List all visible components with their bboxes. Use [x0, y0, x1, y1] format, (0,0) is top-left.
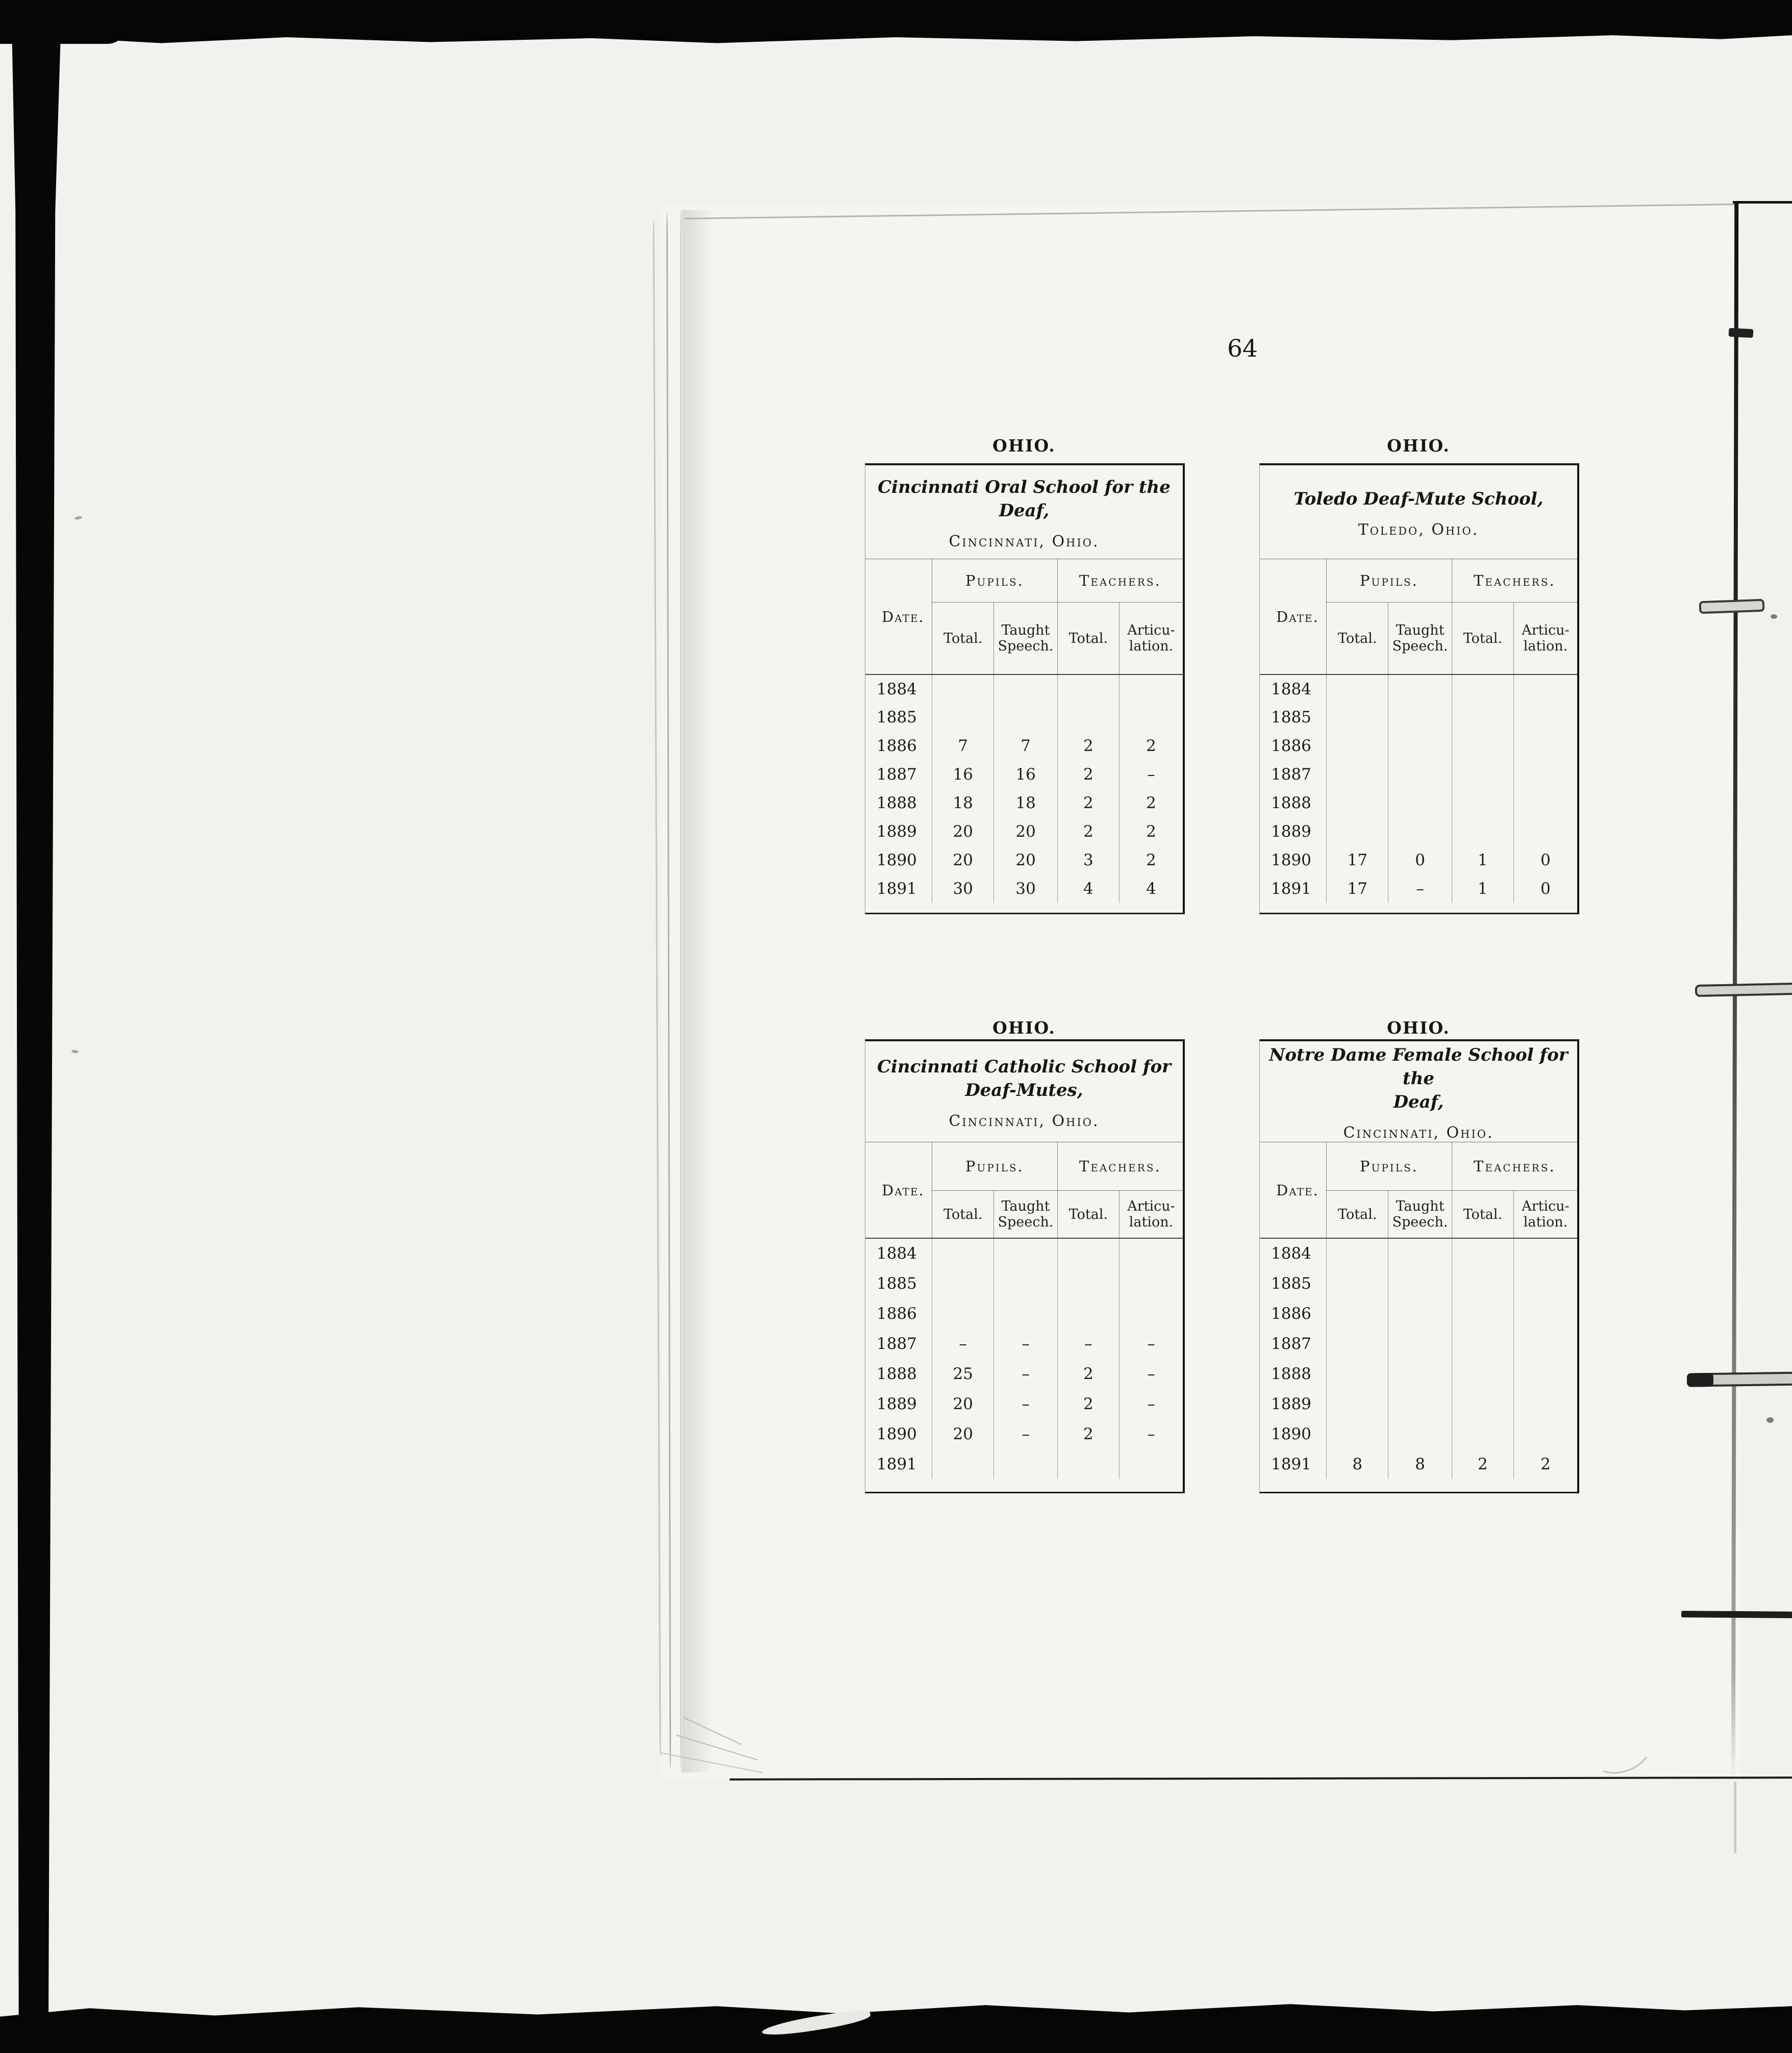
- binding-clip: [1695, 983, 1792, 997]
- value-cell: [994, 1268, 1057, 1298]
- col-header-sub: Articu- lation.: [1514, 1191, 1577, 1239]
- col-header-sub: Total.: [932, 603, 994, 675]
- col-header-date: Date.: [865, 559, 932, 674]
- page-curl-edge: [680, 209, 681, 1769]
- year-cell: 1885: [1260, 1268, 1327, 1298]
- value-cell: [994, 703, 1057, 732]
- value-cell: [1057, 1238, 1119, 1268]
- value-cell: 2: [1057, 789, 1119, 817]
- region-label: OHIO.: [1260, 1018, 1577, 1038]
- school-location: Toledo, Ohio.: [1358, 521, 1479, 539]
- value-cell: [1452, 1298, 1513, 1329]
- value-cell: 30: [994, 874, 1057, 903]
- table-row: 1886: [1260, 1298, 1577, 1329]
- value-cell: [1452, 1238, 1513, 1268]
- table-row: 1891303044: [865, 874, 1183, 903]
- value-cell: [1514, 1298, 1577, 1329]
- binding-clip: [1699, 599, 1765, 614]
- table-row: 1884: [865, 674, 1183, 703]
- value-cell: 8: [1388, 1449, 1452, 1479]
- value-cell: –: [994, 1359, 1057, 1389]
- value-cell: [994, 1238, 1057, 1268]
- table-row: 18867722: [865, 732, 1183, 760]
- scan-black-strip-left: [6, 30, 62, 2053]
- value-cell: 7: [932, 732, 994, 760]
- value-cell: 8: [1327, 1449, 1388, 1479]
- col-header-date: Date.: [1260, 559, 1327, 674]
- value-cell: 0: [1388, 846, 1452, 874]
- value-cell: –: [994, 1389, 1057, 1419]
- statistics-table: Date.Pupils.Teachers.Total.Taught Speech…: [1260, 1142, 1577, 1479]
- table-row: 1885: [1260, 703, 1577, 732]
- value-cell: [1119, 1238, 1183, 1268]
- col-header-sub: Total.: [1452, 603, 1513, 675]
- table-row: 18918822: [1260, 1449, 1577, 1479]
- year-cell: 1891: [865, 1449, 932, 1479]
- binding-clip: [1729, 328, 1754, 338]
- binding-top-edge: [1733, 201, 1792, 204]
- value-cell: 16: [994, 760, 1057, 789]
- year-cell: 1886: [1260, 1298, 1327, 1329]
- value-cell: 17: [1327, 846, 1388, 874]
- value-cell: 20: [932, 846, 994, 874]
- year-cell: 1887: [865, 760, 932, 789]
- value-cell: [1327, 760, 1388, 789]
- value-cell: [932, 1238, 994, 1268]
- value-cell: [1388, 1359, 1452, 1389]
- paper-page: [661, 205, 1741, 1780]
- col-header-sub: Articu- lation.: [1119, 1191, 1183, 1239]
- col-header-sub: Taught Speech.: [994, 1191, 1057, 1239]
- value-cell: [1388, 1298, 1452, 1329]
- value-cell: 18: [994, 789, 1057, 817]
- value-cell: –: [1119, 1359, 1183, 1389]
- value-cell: [1327, 732, 1388, 760]
- scanned-document-page: 64 OHIO. Cincinnati Oral School for the …: [0, 0, 1792, 2053]
- table-row: 1888: [1260, 1359, 1577, 1389]
- value-cell: –: [1388, 874, 1452, 903]
- value-cell: 2: [1057, 1359, 1119, 1389]
- col-header-sub: Total.: [1452, 1191, 1513, 1239]
- value-cell: [1452, 817, 1513, 846]
- table-row: 1885: [865, 1268, 1183, 1298]
- year-cell: 1888: [1260, 1359, 1327, 1389]
- value-cell: [1388, 703, 1452, 732]
- value-cell: [1514, 674, 1577, 703]
- value-cell: 4: [1119, 874, 1183, 903]
- table-row: 1884: [865, 1238, 1183, 1268]
- value-cell: 2: [1057, 760, 1119, 789]
- table-row: 1886: [865, 1298, 1183, 1329]
- value-cell: [1327, 1419, 1388, 1449]
- region-label: OHIO.: [865, 436, 1183, 456]
- table-row: 1888181822: [865, 789, 1183, 817]
- value-cell: [1119, 703, 1183, 732]
- col-header-sub: Taught Speech.: [1388, 1191, 1452, 1239]
- value-cell: 2: [1514, 1449, 1577, 1479]
- table-row: 1890202032: [865, 846, 1183, 874]
- value-cell: [1452, 1268, 1513, 1298]
- value-cell: [1452, 1389, 1513, 1419]
- year-cell: 1888: [865, 789, 932, 817]
- value-cell: [1514, 703, 1577, 732]
- value-cell: 20: [932, 817, 994, 846]
- value-cell: [1514, 1389, 1577, 1419]
- value-cell: 2: [1119, 817, 1183, 846]
- region-label: OHIO.: [1260, 436, 1577, 456]
- value-cell: [1327, 674, 1388, 703]
- value-cell: [1452, 1419, 1513, 1449]
- value-cell: [932, 703, 994, 732]
- value-cell: 18: [932, 789, 994, 817]
- year-cell: 1885: [865, 703, 932, 732]
- value-cell: [1119, 1268, 1183, 1298]
- col-group-teachers: Teachers.: [1452, 559, 1577, 603]
- binding-clip: [1681, 1611, 1792, 1618]
- value-cell: –: [1119, 1389, 1183, 1419]
- value-cell: [1327, 703, 1388, 732]
- year-cell: 1888: [865, 1359, 932, 1389]
- year-cell: 1889: [865, 817, 932, 846]
- value-cell: –: [1119, 1329, 1183, 1359]
- year-cell: 1890: [1260, 846, 1327, 874]
- year-cell: 1889: [865, 1389, 932, 1419]
- col-group-pupils: Pupils.: [932, 559, 1058, 603]
- value-cell: [1388, 1419, 1452, 1449]
- table-row: 1885: [865, 703, 1183, 732]
- value-cell: [1452, 1359, 1513, 1389]
- year-cell: 1887: [1260, 1329, 1327, 1359]
- value-cell: 2: [1057, 1419, 1119, 1449]
- value-cell: –: [994, 1419, 1057, 1449]
- value-cell: [1452, 760, 1513, 789]
- value-cell: [1057, 1449, 1119, 1479]
- value-cell: [932, 674, 994, 703]
- school-table-card-notre-dame: OHIO. Notre Dame Female School for the D…: [1259, 1039, 1579, 1493]
- table-title-block: Toledo Deaf-Mute School, Toledo, Ohio.: [1260, 465, 1577, 559]
- page-curl-edge: [653, 220, 661, 1756]
- value-cell: 16: [932, 760, 994, 789]
- school-table-card-cincinnati-catholic: OHIO. Cincinnati Catholic School for Dea…: [865, 1039, 1185, 1493]
- col-group-teachers: Teachers.: [1057, 1142, 1183, 1191]
- region-label: OHIO.: [865, 1018, 1183, 1038]
- value-cell: [1514, 1268, 1577, 1298]
- table-row: 1891: [865, 1449, 1183, 1479]
- table-row: 189017010: [1260, 846, 1577, 874]
- value-cell: 1: [1452, 846, 1513, 874]
- dust-speck: [74, 516, 83, 520]
- school-name: Cincinnati Oral School for the Deaf,: [870, 475, 1178, 522]
- value-cell: –: [932, 1329, 994, 1359]
- value-cell: –: [1057, 1329, 1119, 1359]
- value-cell: [1327, 1389, 1388, 1419]
- value-cell: –: [1119, 1419, 1183, 1449]
- value-cell: [1388, 1389, 1452, 1419]
- value-cell: 17: [1327, 874, 1388, 903]
- col-group-pupils: Pupils.: [1327, 1142, 1452, 1191]
- binding-wire-faint: [1734, 1782, 1736, 1853]
- value-cell: [1514, 817, 1577, 846]
- table-row: 189020–2–: [865, 1419, 1183, 1449]
- value-cell: [1514, 1419, 1577, 1449]
- school-table-card-cincinnati-oral: OHIO. Cincinnati Oral School for the Dea…: [865, 463, 1185, 914]
- value-cell: 2: [1057, 1389, 1119, 1419]
- page-number: 64: [1199, 335, 1286, 363]
- table-row: 189117–10: [1260, 874, 1577, 903]
- school-name: Notre Dame Female School for the Deaf,: [1265, 1043, 1572, 1114]
- value-cell: 20: [994, 817, 1057, 846]
- year-cell: 1885: [1260, 703, 1327, 732]
- value-cell: [1388, 674, 1452, 703]
- value-cell: 0: [1514, 846, 1577, 874]
- year-cell: 1884: [865, 674, 932, 703]
- table-row: 1889202022: [865, 817, 1183, 846]
- value-cell: [1452, 674, 1513, 703]
- statistics-table: Date.Pupils.Teachers.Total.Taught Speech…: [865, 559, 1183, 903]
- value-cell: [1514, 1238, 1577, 1268]
- col-header-sub: Taught Speech.: [994, 603, 1057, 675]
- year-cell: 1884: [1260, 674, 1327, 703]
- school-name: Toledo Deaf-Mute School,: [1293, 487, 1543, 511]
- value-cell: [1057, 674, 1119, 703]
- value-cell: [1514, 1359, 1577, 1389]
- value-cell: [932, 1449, 994, 1479]
- value-cell: 20: [932, 1419, 994, 1449]
- col-group-pupils: Pupils.: [1327, 559, 1452, 603]
- col-header-date: Date.: [865, 1142, 932, 1238]
- scan-black-bar-top: [0, 0, 1792, 49]
- value-cell: [1057, 1298, 1119, 1329]
- value-cell: [1452, 1329, 1513, 1359]
- school-location: Cincinnati, Ohio.: [1343, 1124, 1494, 1142]
- table-row: 188825–2–: [865, 1359, 1183, 1389]
- year-cell: 1887: [1260, 760, 1327, 789]
- value-cell: [1388, 1329, 1452, 1359]
- value-cell: [1388, 817, 1452, 846]
- table-row: 188716162–: [865, 760, 1183, 789]
- statistics-table: Date.Pupils.Teachers.Total.Taught Speech…: [1260, 559, 1577, 903]
- value-cell: 2: [1119, 789, 1183, 817]
- year-cell: 1890: [1260, 1419, 1327, 1449]
- value-cell: [1452, 732, 1513, 760]
- value-cell: [1388, 1238, 1452, 1268]
- value-cell: 2: [1119, 846, 1183, 874]
- year-cell: 1889: [1260, 1389, 1327, 1419]
- year-cell: 1884: [1260, 1238, 1327, 1268]
- table-row: 1888: [1260, 789, 1577, 817]
- value-cell: [994, 1298, 1057, 1329]
- value-cell: [1327, 1238, 1388, 1268]
- table-title-block: Cincinnati Oral School for the Deaf, Cin…: [865, 465, 1183, 559]
- dust-speck: [1771, 614, 1777, 619]
- table-title-block: Notre Dame Female School for the Deaf, C…: [1260, 1041, 1577, 1142]
- value-cell: 2: [1057, 732, 1119, 760]
- value-cell: [1327, 817, 1388, 846]
- table-row: 1884: [1260, 674, 1577, 703]
- year-cell: 1886: [865, 1298, 932, 1329]
- school-table-card-toledo: OHIO. Toledo Deaf-Mute School, Toledo, O…: [1259, 463, 1579, 914]
- value-cell: 4: [1057, 874, 1119, 903]
- value-cell: [1388, 732, 1452, 760]
- table-title-block: Cincinnati Catholic School for Deaf-Mute…: [865, 1041, 1183, 1142]
- year-cell: 1885: [865, 1268, 932, 1298]
- value-cell: [994, 674, 1057, 703]
- col-header-sub: Total.: [1327, 1191, 1388, 1239]
- value-cell: [1388, 789, 1452, 817]
- table-row: 1890: [1260, 1419, 1577, 1449]
- school-location: Cincinnati, Ohio.: [949, 1112, 1099, 1130]
- year-cell: 1886: [865, 732, 932, 760]
- value-cell: 25: [932, 1359, 994, 1389]
- value-cell: [1327, 1268, 1388, 1298]
- year-cell: 1884: [865, 1238, 932, 1268]
- col-group-teachers: Teachers.: [1057, 559, 1183, 603]
- value-cell: 30: [932, 874, 994, 903]
- year-cell: 1890: [865, 1419, 932, 1449]
- year-cell: 1891: [1260, 874, 1327, 903]
- value-cell: [1388, 760, 1452, 789]
- value-cell: 7: [994, 732, 1057, 760]
- value-cell: [1057, 1268, 1119, 1298]
- value-cell: 1: [1452, 874, 1513, 903]
- table-row: 1889: [1260, 1389, 1577, 1419]
- statistics-table: Date.Pupils.Teachers.Total.Taught Speech…: [865, 1142, 1183, 1479]
- col-group-teachers: Teachers.: [1452, 1142, 1577, 1191]
- table-row: 1887: [1260, 760, 1577, 789]
- table-row: 1889: [1260, 817, 1577, 846]
- school-name: Cincinnati Catholic School for Deaf-Mute…: [877, 1055, 1171, 1102]
- value-cell: 3: [1057, 846, 1119, 874]
- table-row: 1887––––: [865, 1329, 1183, 1359]
- col-header-sub: Total.: [1057, 603, 1119, 675]
- col-header-sub: Articu- lation.: [1119, 603, 1183, 675]
- year-cell: 1886: [1260, 732, 1327, 760]
- year-cell: 1890: [865, 846, 932, 874]
- year-cell: 1891: [1260, 1449, 1327, 1479]
- table-row: 188920–2–: [865, 1389, 1183, 1419]
- value-cell: 20: [932, 1389, 994, 1419]
- table-row: 1885: [1260, 1268, 1577, 1298]
- dust-speck: [71, 1049, 79, 1054]
- scan-black-bar-bottom: [0, 2001, 1792, 2053]
- value-cell: [1514, 760, 1577, 789]
- col-header-sub: Total.: [1057, 1191, 1119, 1239]
- value-cell: [1327, 1359, 1388, 1389]
- value-cell: 2: [1119, 732, 1183, 760]
- value-cell: 0: [1514, 874, 1577, 903]
- value-cell: [932, 1298, 994, 1329]
- year-cell: 1891: [865, 874, 932, 903]
- value-cell: 2: [1452, 1449, 1513, 1479]
- col-header-sub: Total.: [1327, 603, 1388, 675]
- year-cell: 1888: [1260, 789, 1327, 817]
- value-cell: [1514, 732, 1577, 760]
- table-row: 1884: [1260, 1238, 1577, 1268]
- value-cell: [1327, 789, 1388, 817]
- value-cell: [994, 1449, 1057, 1479]
- page-gutter-shadow: [682, 210, 714, 1772]
- value-cell: –: [1119, 760, 1183, 789]
- value-cell: [1514, 1329, 1577, 1359]
- value-cell: [1327, 1298, 1388, 1329]
- value-cell: 20: [994, 846, 1057, 874]
- year-cell: 1889: [1260, 817, 1327, 846]
- col-group-pupils: Pupils.: [932, 1142, 1058, 1191]
- school-location: Cincinnati, Ohio.: [949, 533, 1099, 550]
- dust-speck: [1766, 1417, 1774, 1423]
- year-cell: 1887: [865, 1329, 932, 1359]
- col-header-sub: Total.: [932, 1191, 994, 1239]
- col-header-sub: Taught Speech.: [1388, 603, 1452, 675]
- value-cell: [1452, 703, 1513, 732]
- value-cell: 2: [1057, 817, 1119, 846]
- col-header-sub: Articu- lation.: [1514, 603, 1577, 675]
- value-cell: [1057, 703, 1119, 732]
- value-cell: [1452, 789, 1513, 817]
- binding-clip: [1687, 1371, 1792, 1387]
- value-cell: [1119, 1298, 1183, 1329]
- table-row: 1887: [1260, 1329, 1577, 1359]
- value-cell: [1327, 1329, 1388, 1359]
- value-cell: [932, 1268, 994, 1298]
- value-cell: [1388, 1268, 1452, 1298]
- col-header-date: Date.: [1260, 1142, 1327, 1238]
- value-cell: –: [994, 1329, 1057, 1359]
- value-cell: [1119, 1449, 1183, 1479]
- value-cell: [1514, 789, 1577, 817]
- table-row: 1886: [1260, 732, 1577, 760]
- value-cell: [1119, 674, 1183, 703]
